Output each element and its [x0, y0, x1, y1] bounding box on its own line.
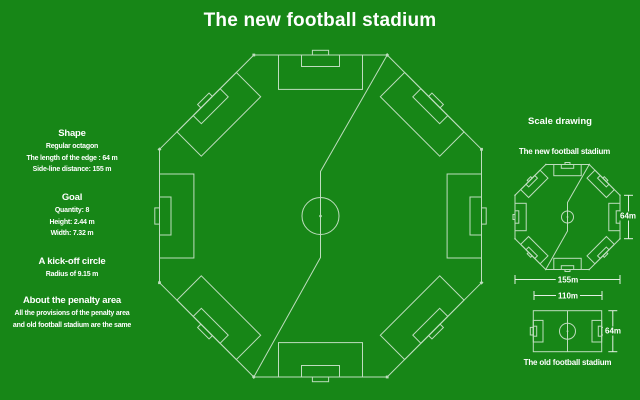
info-section-kickoff-circle: A kick-off circle Radius of 9.15 m [0, 255, 144, 281]
info-section-shape: Shape Regular octagon The length of the … [0, 127, 144, 176]
section-heading: About the penalty area [0, 294, 144, 308]
centre-spot [567, 330, 569, 332]
goal-area-left [533, 326, 536, 336]
penalty-area-left [533, 320, 543, 342]
info-line: Radius of 9.15 m [0, 269, 144, 281]
dimension-label-110m: 110m [556, 292, 580, 301]
info-line: The length of the edge : 64 m [0, 153, 144, 165]
info-line: Quantity: 8 [0, 205, 144, 217]
new-stadium-caption: The new football stadium [507, 147, 622, 157]
info-section-penalty-area: About the penalty area All the provision… [0, 294, 144, 331]
dimension-label-edge-64m: 64m [618, 212, 638, 221]
old-stadium-caption: The old football stadium [510, 358, 625, 368]
edge-markings [362, 51, 468, 157]
edge-markings [447, 148, 486, 258]
section-heading: Goal [0, 191, 144, 205]
edge-markings [519, 237, 554, 272]
info-line: and old football stadium are the same [0, 320, 144, 332]
goal-left [530, 327, 533, 335]
info-line: Height: 2.44 m [0, 217, 144, 229]
edge-markings [252, 50, 362, 89]
new-stadium-diagram [155, 50, 486, 381]
centre-spot [319, 215, 322, 218]
section-heading: Shape [0, 127, 144, 141]
old-stadium-diagram [530, 311, 604, 352]
edge-markings [513, 169, 548, 204]
info-line: Side-line distance: 155 m [0, 164, 144, 176]
edge-markings [581, 163, 616, 198]
goal-area-right [598, 326, 601, 336]
section-heading: A kick-off circle [0, 255, 144, 269]
scale-new-stadium-diagram [513, 163, 622, 272]
edge-markings [155, 174, 194, 284]
info-line: Regular octagon [0, 141, 144, 153]
edge-markings [380, 257, 486, 363]
info-line: All the provisions of the penalty area [0, 308, 144, 320]
dimension-label-old-64m: 64m [603, 327, 623, 336]
penalty-area-right [592, 320, 602, 342]
scale-drawing-heading: Scale drawing [500, 116, 620, 128]
edge-markings [587, 230, 622, 265]
centre-spot [567, 216, 569, 218]
info-section-goal: Goal Quantity: 8 Height: 2.44 m Width: 7… [0, 191, 144, 240]
dimension-label-155m: 155m [556, 276, 580, 285]
info-line: Width: 7.32 m [0, 228, 144, 240]
edge-markings [279, 343, 389, 382]
edge-markings [155, 69, 261, 175]
edge-markings [174, 276, 280, 382]
